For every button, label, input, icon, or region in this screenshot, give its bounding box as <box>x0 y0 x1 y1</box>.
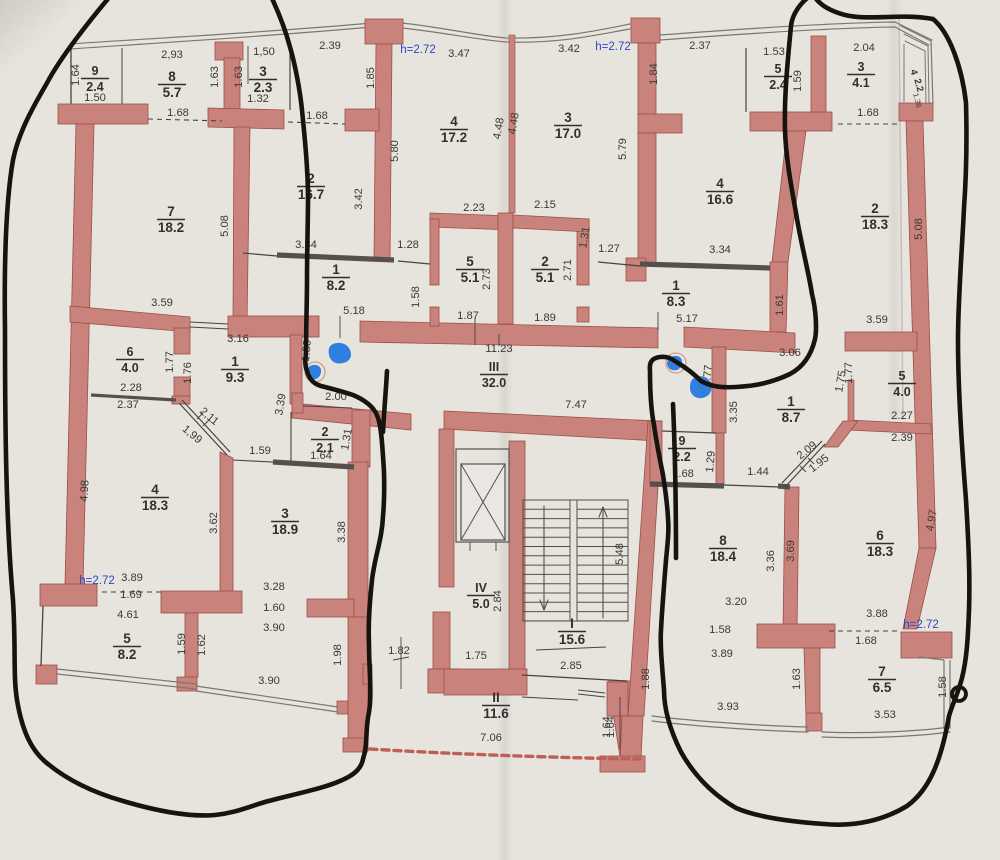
svg-text:18.3: 18.3 <box>142 498 169 513</box>
svg-text:2.37: 2.37 <box>689 40 711 52</box>
svg-text:5: 5 <box>899 369 906 383</box>
svg-text:3.69: 3.69 <box>785 540 797 562</box>
svg-text:I: I <box>570 616 574 631</box>
svg-text:3.88: 3.88 <box>866 608 888 620</box>
svg-text:2.85: 2.85 <box>560 660 582 672</box>
svg-text:1.68: 1.68 <box>855 635 877 647</box>
svg-text:7.47: 7.47 <box>565 399 587 411</box>
svg-text:9.3: 9.3 <box>226 370 245 385</box>
svg-text:3.35: 3.35 <box>728 401 740 423</box>
svg-text:1.76: 1.76 <box>182 362 194 384</box>
svg-text:1.63: 1.63 <box>233 66 245 88</box>
svg-text:5: 5 <box>123 631 131 646</box>
svg-text:1.64: 1.64 <box>70 64 82 86</box>
svg-text:1.27: 1.27 <box>598 243 620 255</box>
svg-text:17.0: 17.0 <box>555 126 581 141</box>
svg-text:2.73: 2.73 <box>481 268 493 290</box>
svg-text:4.0: 4.0 <box>893 385 910 399</box>
svg-text:3.47: 3.47 <box>448 48 470 60</box>
svg-text:18.9: 18.9 <box>272 522 298 537</box>
svg-text:3.53: 3.53 <box>874 709 896 721</box>
svg-text:3.38: 3.38 <box>336 521 348 543</box>
svg-text:2: 2 <box>541 254 549 269</box>
svg-text:4: 4 <box>716 176 724 191</box>
svg-text:5: 5 <box>466 254 474 269</box>
svg-text:1.89: 1.89 <box>534 312 556 324</box>
svg-text:2.23: 2.23 <box>463 202 485 214</box>
svg-text:3.20: 3.20 <box>725 596 747 608</box>
svg-text:4.0: 4.0 <box>121 361 138 375</box>
svg-text:2.84: 2.84 <box>492 590 504 612</box>
svg-text:1.61: 1.61 <box>774 294 786 316</box>
svg-text:2.27: 2.27 <box>891 410 913 422</box>
svg-text:3.89: 3.89 <box>711 648 733 660</box>
svg-text:11.23: 11.23 <box>485 343 512 355</box>
svg-text:9: 9 <box>679 434 686 448</box>
svg-text:2.39: 2.39 <box>891 432 913 444</box>
svg-text:8: 8 <box>168 69 176 84</box>
svg-text:3.62: 3.62 <box>208 512 220 534</box>
svg-text:3.06: 3.06 <box>779 347 801 359</box>
svg-text:5.08: 5.08 <box>913 218 925 240</box>
svg-text:h=2.72: h=2.72 <box>79 575 115 587</box>
svg-text:1.87: 1.87 <box>457 310 479 322</box>
svg-text:III: III <box>489 360 499 374</box>
svg-text:5.1: 5.1 <box>536 270 555 285</box>
svg-text:1.68: 1.68 <box>306 110 328 122</box>
svg-text:h=2.72: h=2.72 <box>400 44 436 56</box>
svg-text:1.32: 1.32 <box>247 93 269 105</box>
svg-text:1,50: 1,50 <box>253 46 275 58</box>
svg-text:3: 3 <box>858 60 865 74</box>
svg-text:8.7: 8.7 <box>782 410 801 425</box>
svg-text:5.0: 5.0 <box>472 597 489 611</box>
svg-text:4: 4 <box>450 114 458 129</box>
svg-text:2: 2 <box>322 425 329 439</box>
svg-text:5.7: 5.7 <box>163 85 182 100</box>
svg-text:4.61: 4.61 <box>117 609 139 621</box>
svg-text:1.98: 1.98 <box>332 644 344 666</box>
svg-text:1.82: 1.82 <box>388 645 410 657</box>
svg-text:2.39: 2.39 <box>319 40 341 52</box>
svg-text:3.42: 3.42 <box>353 188 365 210</box>
svg-text:2: 2 <box>871 201 879 216</box>
svg-text:16.6: 16.6 <box>707 192 734 207</box>
svg-text:3.93: 3.93 <box>717 701 739 713</box>
svg-text:5.80: 5.80 <box>389 140 401 162</box>
svg-text:5.1: 5.1 <box>461 270 480 285</box>
svg-text:h=2.72: h=2.72 <box>595 41 631 53</box>
svg-text:2.28: 2.28 <box>120 382 142 394</box>
svg-text:3.89: 3.89 <box>121 572 143 584</box>
svg-text:3.36: 3.36 <box>765 550 777 572</box>
svg-text:7: 7 <box>167 204 175 219</box>
svg-text:1.28: 1.28 <box>397 239 419 251</box>
svg-text:6.5: 6.5 <box>873 680 892 695</box>
svg-text:3: 3 <box>564 110 572 125</box>
svg-text:1.88: 1.88 <box>640 668 652 690</box>
svg-text:5: 5 <box>775 62 782 76</box>
svg-text:5.17: 5.17 <box>676 313 698 325</box>
svg-text:2.71: 2.71 <box>562 259 574 281</box>
svg-text:18.3: 18.3 <box>867 544 894 559</box>
svg-text:3.16: 3.16 <box>227 333 249 345</box>
svg-text:5.79: 5.79 <box>617 138 629 160</box>
svg-text:1.58: 1.58 <box>709 624 731 636</box>
svg-text:6: 6 <box>127 345 134 359</box>
svg-text:2.04: 2.04 <box>853 42 875 54</box>
svg-text:1: 1 <box>787 394 795 409</box>
svg-text:1.58: 1.58 <box>410 286 422 308</box>
svg-text:1.53: 1.53 <box>763 46 785 58</box>
svg-text:4.98: 4.98 <box>78 480 91 502</box>
svg-text:4: 4 <box>151 482 159 497</box>
svg-text:1: 1 <box>332 262 340 277</box>
svg-text:h=2.72: h=2.72 <box>903 619 939 631</box>
svg-text:1.44: 1.44 <box>747 466 769 478</box>
svg-text:32.0: 32.0 <box>482 376 506 390</box>
svg-text:2.37: 2.37 <box>117 399 139 411</box>
svg-text:4.1: 4.1 <box>852 76 869 90</box>
svg-text:1.77: 1.77 <box>843 362 855 384</box>
svg-text:1.84: 1.84 <box>648 63 660 85</box>
svg-text:3.28: 3.28 <box>263 581 285 593</box>
svg-text:18.4: 18.4 <box>710 549 737 564</box>
svg-text:5.48: 5.48 <box>614 543 626 565</box>
svg-text:18.2: 18.2 <box>158 220 184 235</box>
svg-text:1.62: 1.62 <box>196 634 208 656</box>
svg-text:6: 6 <box>876 528 884 543</box>
svg-text:8.3: 8.3 <box>667 294 686 309</box>
svg-text:1.59: 1.59 <box>249 445 271 457</box>
svg-text:3.42: 3.42 <box>558 43 580 55</box>
svg-text:1.63: 1.63 <box>209 66 221 88</box>
svg-text:1.63: 1.63 <box>791 668 803 690</box>
svg-text:1.69: 1.69 <box>120 589 142 601</box>
svg-text:11.6: 11.6 <box>483 706 509 721</box>
svg-text:1.77: 1.77 <box>164 351 176 373</box>
svg-text:1.50: 1.50 <box>84 92 106 104</box>
svg-text:7.06: 7.06 <box>480 732 502 744</box>
svg-text:1.68: 1.68 <box>857 107 879 119</box>
svg-text:3: 3 <box>259 64 267 79</box>
svg-text:5.08: 5.08 <box>219 215 231 237</box>
svg-text:1.60: 1.60 <box>263 602 285 614</box>
svg-text:1.64: 1.64 <box>601 716 613 738</box>
svg-text:IV: IV <box>475 581 487 595</box>
svg-text:1.75: 1.75 <box>465 650 487 662</box>
svg-text:3.90: 3.90 <box>258 675 280 687</box>
svg-text:1.59: 1.59 <box>176 633 188 655</box>
svg-text:1.85: 1.85 <box>365 67 377 89</box>
svg-text:8.2: 8.2 <box>118 647 137 662</box>
svg-text:1.59: 1.59 <box>792 70 804 92</box>
svg-text:3.90: 3.90 <box>263 622 285 634</box>
svg-text:8.2: 8.2 <box>327 278 346 293</box>
svg-text:7: 7 <box>878 664 886 679</box>
svg-text:5.18: 5.18 <box>343 305 365 317</box>
svg-text:15.6: 15.6 <box>559 632 586 647</box>
svg-text:8: 8 <box>719 533 727 548</box>
svg-text:2,93: 2,93 <box>161 49 183 61</box>
svg-text:3.34: 3.34 <box>709 244 731 256</box>
svg-text:3: 3 <box>281 506 289 521</box>
svg-text:17.2: 17.2 <box>441 130 467 145</box>
svg-text:3.59: 3.59 <box>151 297 173 309</box>
svg-text:2.15: 2.15 <box>534 199 556 211</box>
svg-text:1: 1 <box>672 278 680 293</box>
svg-text:1.29: 1.29 <box>704 450 718 473</box>
svg-text:1.68: 1.68 <box>167 107 189 119</box>
svg-text:1.58: 1.58 <box>937 676 949 698</box>
svg-text:16.7: 16.7 <box>298 187 324 202</box>
svg-text:3.59: 3.59 <box>866 314 888 326</box>
svg-text:18.3: 18.3 <box>862 217 889 232</box>
svg-text:1.64: 1.64 <box>310 450 332 462</box>
svg-text:1: 1 <box>231 354 239 369</box>
svg-text:9: 9 <box>92 64 99 78</box>
svg-text:II: II <box>492 690 500 705</box>
